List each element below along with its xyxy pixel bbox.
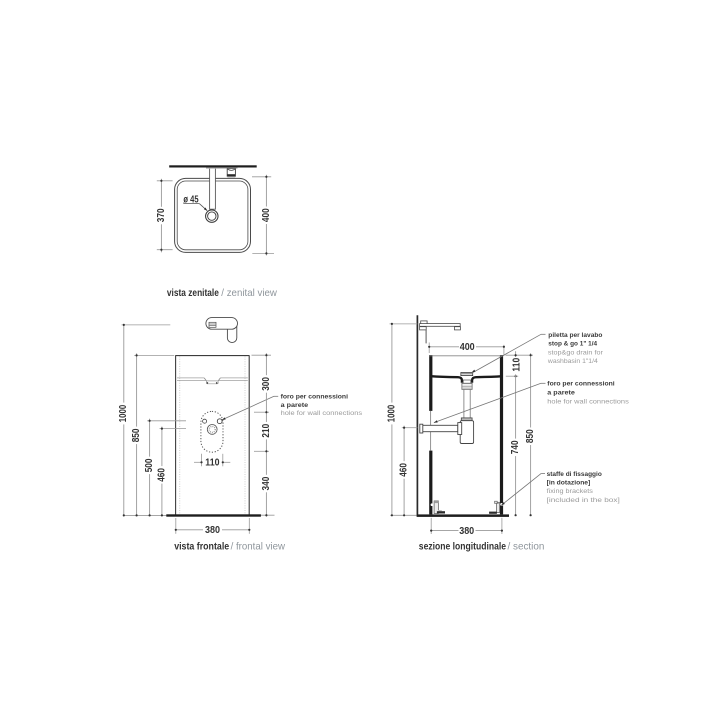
svg-text:vista frontale: vista frontale <box>174 540 229 552</box>
svg-text:1000: 1000 <box>118 404 129 422</box>
svg-text:460: 460 <box>156 468 167 482</box>
svg-text:/ zenital view: / zenital view <box>221 287 277 299</box>
svg-text:/ frontal view: / frontal view <box>231 540 286 552</box>
svg-text:850: 850 <box>525 429 536 443</box>
svg-text:1000: 1000 <box>386 404 397 422</box>
svg-text:300: 300 <box>261 377 272 391</box>
svg-text:210: 210 <box>261 423 272 437</box>
svg-text:[in dotazione]: [in dotazione] <box>547 480 591 487</box>
svg-text:[included in the box]: [included in the box] <box>547 497 620 504</box>
svg-text:a parete: a parete <box>281 402 309 409</box>
svg-text:380: 380 <box>205 525 220 536</box>
svg-text:370: 370 <box>156 208 167 222</box>
svg-text:hole for wall connections: hole for wall connections <box>281 410 363 417</box>
svg-text:460: 460 <box>399 463 410 477</box>
svg-text:/ section: / section <box>508 540 545 552</box>
svg-text:sezione longitudinale: sezione longitudinale <box>419 540 506 552</box>
svg-text:380: 380 <box>459 526 474 537</box>
svg-text:500: 500 <box>144 458 155 472</box>
svg-text:hole for wall connections: hole for wall connections <box>547 399 629 406</box>
svg-text:400: 400 <box>261 208 272 222</box>
svg-text:washbasin 1"1/4: washbasin 1"1/4 <box>547 358 598 365</box>
svg-text:fixing brackets: fixing brackets <box>547 488 594 495</box>
svg-text:340: 340 <box>261 476 272 490</box>
svg-text:stop&go drain for: stop&go drain for <box>548 350 604 357</box>
svg-text:foro per connessioni: foro per connessioni <box>547 380 615 387</box>
svg-text:740: 740 <box>510 440 521 454</box>
svg-text:850: 850 <box>131 428 142 442</box>
svg-text:staffe di fissaggio: staffe di fissaggio <box>547 471 602 478</box>
svg-text:piletta per lavabo: piletta per lavabo <box>548 332 602 339</box>
svg-text:foro per connessioni: foro per connessioni <box>281 393 349 400</box>
svg-text:vista zenitale: vista zenitale <box>167 287 219 299</box>
svg-text:stop & go 1" 1/4: stop & go 1" 1/4 <box>548 340 597 347</box>
svg-text:a parete: a parete <box>547 390 575 397</box>
svg-text:110: 110 <box>512 357 523 371</box>
svg-text:400: 400 <box>460 342 475 353</box>
svg-text:110: 110 <box>205 458 220 469</box>
